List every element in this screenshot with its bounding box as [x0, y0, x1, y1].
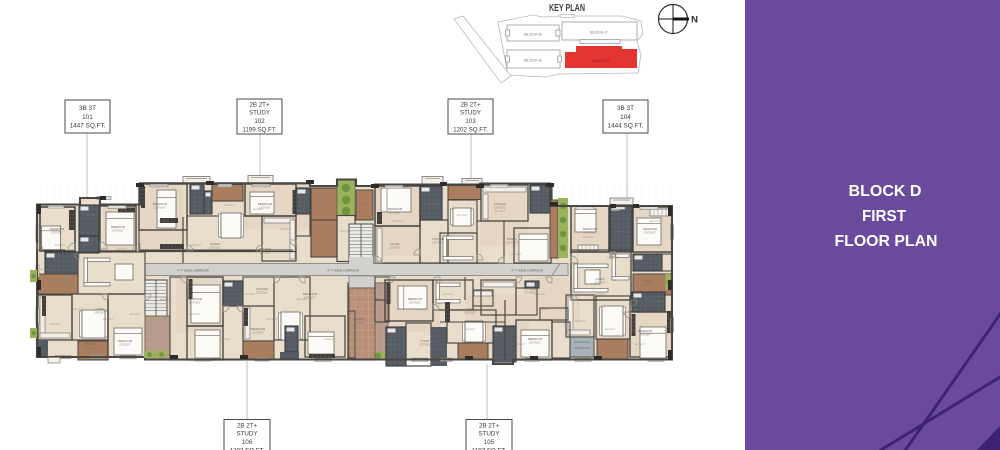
- svg-text:12'0"X11'0": 12'0"X11'0": [119, 345, 131, 347]
- svg-text:FIRST: FIRST: [862, 208, 906, 225]
- svg-text:KITCHEN: KITCHEN: [524, 287, 536, 291]
- svg-text:10'0"X11'2": 10'0"X11'2": [103, 319, 114, 321]
- svg-text:BEDROOM: BEDROOM: [583, 227, 598, 231]
- svg-text:10'0"X11'2": 10'0"X11'2": [191, 245, 202, 247]
- svg-text:12'0"X11'0": 12'0"X11'0": [464, 313, 476, 315]
- svg-text:BEDROOM: BEDROOM: [528, 337, 543, 341]
- svg-text:12'0"X11'0": 12'0"X11'0": [524, 293, 536, 295]
- svg-text:STUDY: STUDY: [420, 339, 429, 343]
- svg-text:10'0"X11'2": 10'0"X11'2": [387, 344, 398, 346]
- svg-text:12'0"X11'0": 12'0"X11'0": [419, 345, 431, 347]
- svg-text:2B 2T+: 2B 2T+: [460, 101, 481, 108]
- svg-text:10'0"X11'2": 10'0"X11'2": [415, 309, 426, 311]
- svg-text:4'-7" WIDE CORRIDOR: 4'-7" WIDE CORRIDOR: [511, 269, 544, 273]
- svg-text:2B 2T+: 2B 2T+: [249, 101, 270, 108]
- svg-text:12'0"X11'0": 12'0"X11'0": [94, 313, 106, 315]
- svg-text:12'0"X11'0": 12'0"X11'0": [252, 333, 264, 335]
- svg-text:2B 2T+: 2B 2T+: [237, 422, 258, 429]
- svg-text:BEDROOM: BEDROOM: [258, 202, 273, 206]
- svg-text:DINING: DINING: [210, 242, 219, 246]
- svg-text:102: 102: [254, 118, 265, 125]
- svg-text:BEDROOM: BEDROOM: [388, 207, 403, 211]
- svg-text:10'0"X11'2": 10'0"X11'2": [355, 299, 366, 301]
- svg-text:10'0"X11'2": 10'0"X11'2": [427, 204, 438, 206]
- svg-text:BLOCK-C: BLOCK-C: [590, 30, 608, 35]
- svg-text:10'0"X11'2": 10'0"X11'2": [583, 237, 594, 239]
- svg-text:12'0"X11'0": 12'0"X11'0": [389, 248, 401, 250]
- svg-text:12'0"X11'0": 12'0"X11'0": [389, 213, 401, 215]
- svg-text:KITCHEN: KITCHEN: [256, 287, 268, 291]
- svg-text:12'0"X11'0": 12'0"X11'0": [642, 285, 654, 287]
- svg-text:10'0"X11'2": 10'0"X11'2": [535, 294, 546, 296]
- svg-text:STUDY: STUDY: [249, 110, 270, 117]
- svg-text:10'0"X11'2": 10'0"X11'2": [55, 245, 66, 247]
- svg-text:BEDROOM: BEDROOM: [303, 292, 318, 296]
- svg-text:10'0"X11'2": 10'0"X11'2": [515, 344, 526, 346]
- svg-text:104: 104: [620, 114, 631, 121]
- svg-text:12'0"X11'0": 12'0"X11'0": [594, 283, 606, 285]
- svg-text:10'0"X11'2": 10'0"X11'2": [73, 309, 84, 311]
- svg-text:106: 106: [242, 439, 253, 446]
- svg-text:10'0"X11'2": 10'0"X11'2": [605, 329, 616, 331]
- svg-text:1444 SQ.FT.: 1444 SQ.FT.: [608, 123, 644, 130]
- svg-text:10'0"X11'2": 10'0"X11'2": [325, 339, 336, 341]
- svg-text:101: 101: [82, 114, 93, 121]
- svg-text:10'0"X11'2": 10'0"X11'2": [443, 294, 454, 296]
- svg-text:12'0"X11'0": 12'0"X11'0": [494, 208, 506, 210]
- svg-text:10'0"X11'2": 10'0"X11'2": [465, 329, 476, 331]
- svg-text:STUDY: STUDY: [460, 110, 481, 117]
- svg-text:BEDROOM: BEDROOM: [153, 202, 168, 206]
- svg-text:10'0"X11'2": 10'0"X11'2": [160, 299, 171, 301]
- svg-text:KITCHEN: KITCHEN: [84, 342, 96, 346]
- svg-text:12'0"X11'0": 12'0"X11'0": [354, 323, 366, 325]
- svg-text:10'0"X11'2": 10'0"X11'2": [555, 245, 566, 247]
- svg-text:FLOOR PLAN: FLOOR PLAN: [835, 233, 938, 250]
- svg-text:10'0"X11'2": 10'0"X11'2": [315, 199, 326, 201]
- svg-text:FOYER: FOYER: [390, 242, 399, 246]
- svg-text:10'0"X11'2": 10'0"X11'2": [158, 221, 169, 223]
- svg-text:10'0"X11'2": 10'0"X11'2": [117, 249, 128, 251]
- svg-text:KITCHEN: KITCHEN: [494, 202, 506, 206]
- svg-text:BEDROOM: BEDROOM: [111, 225, 126, 229]
- svg-text:1199 SQ.FT.: 1199 SQ.FT.: [242, 126, 277, 133]
- svg-text:10'0"X11'2": 10'0"X11'2": [341, 231, 352, 233]
- svg-text:LOBBY: LOBBY: [356, 317, 365, 321]
- svg-text:10'0"X11'2": 10'0"X11'2": [615, 231, 626, 233]
- svg-text:STUDY: STUDY: [237, 431, 258, 438]
- svg-text:12'0"X11'0": 12'0"X11'0": [639, 335, 651, 337]
- svg-text:12'0"X11'0": 12'0"X11'0": [432, 243, 444, 245]
- svg-text:BLOCK-A: BLOCK-A: [524, 58, 542, 63]
- svg-text:BEDROOM: BEDROOM: [118, 339, 133, 343]
- svg-text:12'0"X11'0": 12'0"X11'0": [189, 303, 201, 305]
- svg-text:LIVING: LIVING: [466, 307, 475, 311]
- svg-text:10'0"X11'2": 10'0"X11'2": [635, 344, 646, 346]
- svg-text:1447 SQ.FT.: 1447 SQ.FT.: [70, 123, 106, 130]
- svg-text:12'0"X11'0": 12'0"X11'0": [529, 343, 541, 345]
- svg-text:12'0"X11'0": 12'0"X11'0": [84, 348, 96, 350]
- svg-text:12'0"X11'0": 12'0"X11'0": [209, 248, 221, 250]
- svg-text:10'0"X11'2": 10'0"X11'2": [245, 294, 256, 296]
- svg-text:10'0"X11'2": 10'0"X11'2": [130, 314, 141, 316]
- svg-text:10'0"X11'2": 10'0"X11'2": [220, 339, 231, 341]
- svg-text:BEDROOM: BEDROOM: [408, 297, 423, 301]
- svg-text:BLOCK-B: BLOCK-B: [524, 32, 542, 37]
- svg-text:12'0"X11'0": 12'0"X11'0": [51, 233, 63, 235]
- svg-text:10'0"X11'2": 10'0"X11'2": [50, 324, 61, 326]
- svg-text:BEDROOM: BEDROOM: [638, 329, 653, 333]
- svg-text:LIVING: LIVING: [596, 277, 605, 281]
- svg-text:BEDROOM: BEDROOM: [643, 227, 658, 231]
- svg-text:N: N: [691, 15, 698, 26]
- svg-text:BEDROOM: BEDROOM: [251, 327, 266, 331]
- svg-text:10'0"X11'2": 10'0"X11'2": [511, 254, 522, 256]
- svg-text:12'0"X11'0": 12'0"X11'0": [409, 303, 421, 305]
- svg-text:10'0"X11'2": 10'0"X11'2": [190, 314, 201, 316]
- svg-text:DINING: DINING: [507, 237, 516, 241]
- svg-text:BATH: BATH: [645, 279, 652, 283]
- svg-text:3B 3T: 3B 3T: [617, 105, 634, 112]
- svg-text:10'0"X11'2": 10'0"X11'2": [360, 204, 371, 206]
- svg-text:1202 SQ.FT.: 1202 SQ.FT.: [453, 126, 488, 133]
- svg-text:12'0"X11'0": 12'0"X11'0": [304, 298, 316, 300]
- svg-text:105: 105: [484, 439, 495, 446]
- svg-text:10'0"X11'2": 10'0"X11'2": [40, 269, 51, 271]
- svg-text:BATH: BATH: [610, 252, 617, 256]
- svg-text:10'0"X11'2": 10'0"X11'2": [457, 215, 468, 217]
- svg-text:BEDROOM: BEDROOM: [188, 297, 203, 301]
- svg-text:LIVING: LIVING: [96, 307, 105, 311]
- svg-text:STUDY: STUDY: [479, 431, 500, 438]
- svg-text:10'0"X11'2": 10'0"X11'2": [280, 229, 291, 231]
- svg-text:10'0"X11'2": 10'0"X11'2": [225, 205, 236, 207]
- svg-text:12'0"X11'0": 12'0"X11'0": [154, 208, 166, 210]
- svg-text:2B 2T+: 2B 2T+: [479, 422, 500, 429]
- svg-text:BLOCK-D: BLOCK-D: [592, 58, 610, 63]
- svg-text:KEY PLAN: KEY PLAN: [549, 2, 585, 14]
- svg-text:10'0"X11'2": 10'0"X11'2": [540, 309, 551, 311]
- svg-text:10'0"X11'2": 10'0"X11'2": [655, 301, 666, 303]
- svg-text:4'-7" WIDE CORRIDOR: 4'-7" WIDE CORRIDOR: [327, 269, 360, 273]
- svg-text:12'0"X11'0": 12'0"X11'0": [584, 233, 596, 235]
- svg-text:BLOCK D: BLOCK D: [849, 183, 922, 200]
- svg-text:103: 103: [465, 118, 476, 125]
- svg-text:KITCHEN: KITCHEN: [432, 237, 444, 241]
- svg-text:10'0"X11'2": 10'0"X11'2": [650, 221, 661, 223]
- svg-text:KITCHEN: KITCHEN: [259, 247, 271, 251]
- svg-text:4'-7" WIDE CORRIDOR: 4'-7" WIDE CORRIDOR: [177, 269, 210, 273]
- svg-text:BEDROOM: BEDROOM: [50, 227, 65, 231]
- svg-text:12'0"X11'0": 12'0"X11'0": [112, 231, 124, 233]
- svg-text:12'0"X11'0": 12'0"X11'0": [506, 243, 518, 245]
- svg-text:3B 3T: 3B 3T: [79, 105, 96, 112]
- svg-text:10'0"X11'2": 10'0"X11'2": [393, 221, 404, 223]
- svg-text:10'0"X11'2": 10'0"X11'2": [87, 215, 98, 217]
- svg-text:12'0"X11'0": 12'0"X11'0": [256, 293, 268, 295]
- svg-text:12'0"X11'0": 12'0"X11'0": [259, 208, 271, 210]
- svg-text:10'0"X11'2": 10'0"X11'2": [267, 319, 278, 321]
- svg-text:12'0"X11'0": 12'0"X11'0": [259, 253, 271, 255]
- svg-text:10'0"X11'2": 10'0"X11'2": [595, 294, 606, 296]
- svg-text:10'0"X11'2": 10'0"X11'2": [495, 211, 506, 213]
- svg-text:12'0"X11'0": 12'0"X11'0": [607, 258, 619, 260]
- svg-text:12'0"X11'0": 12'0"X11'0": [644, 233, 656, 235]
- svg-text:10'0"X11'2": 10'0"X11'2": [575, 321, 586, 323]
